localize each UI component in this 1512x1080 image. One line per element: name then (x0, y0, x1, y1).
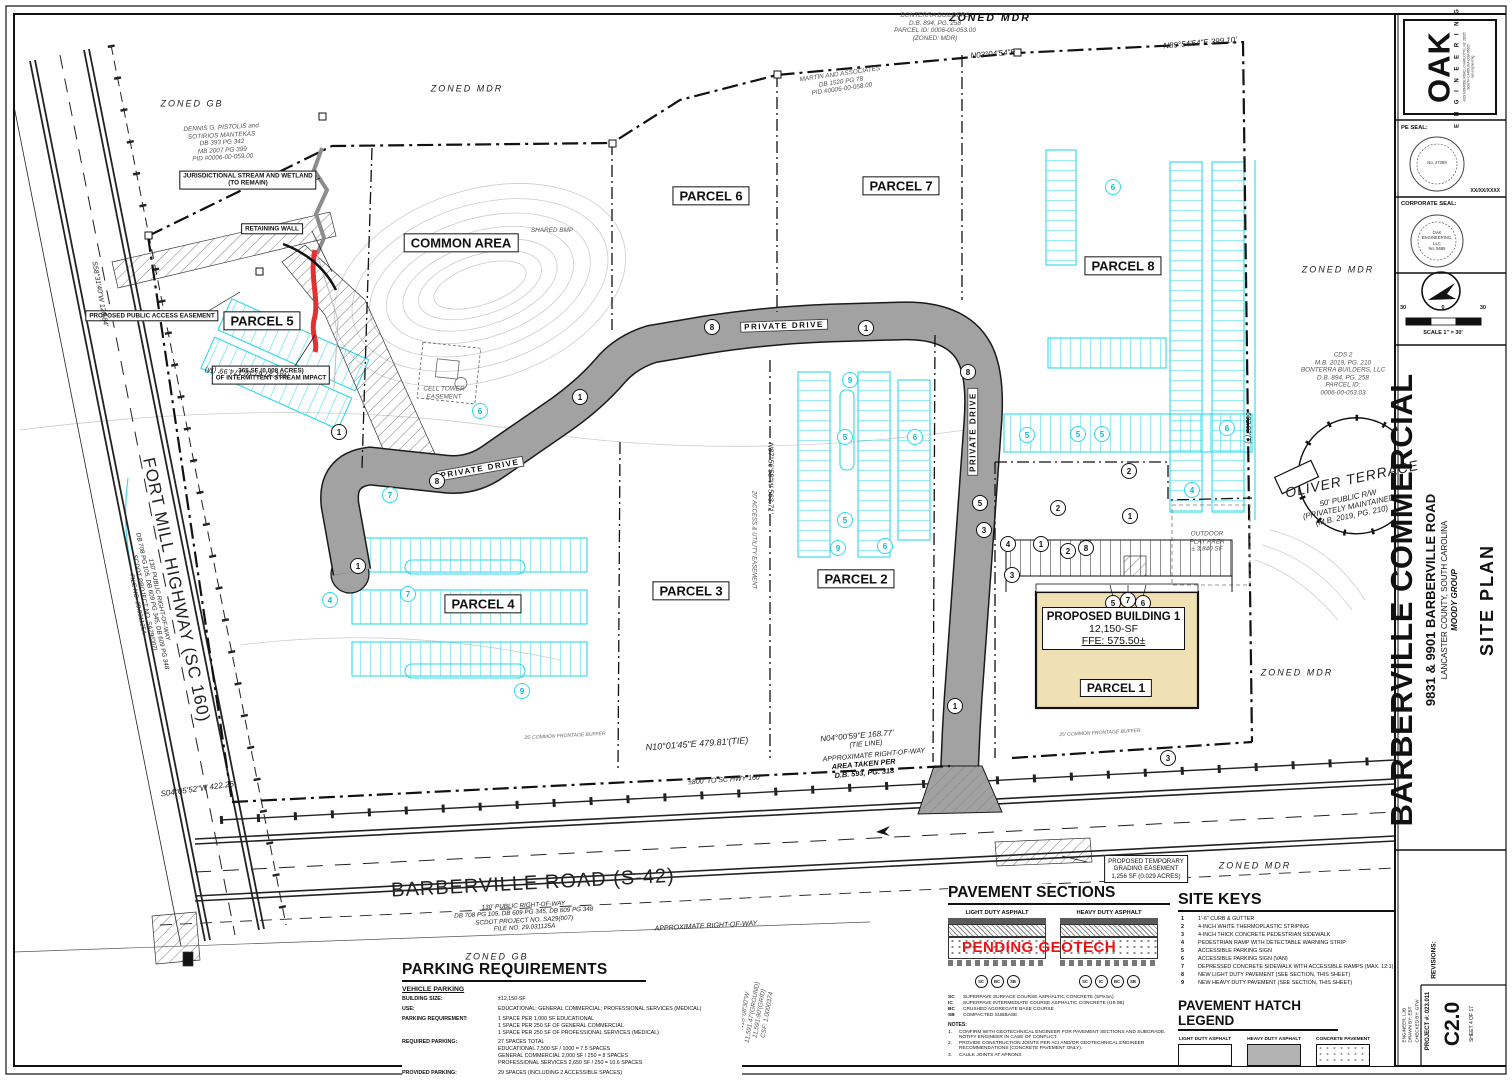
hatch-legend-swatch (1247, 1044, 1301, 1066)
parking-row-value: EDUCATIONAL; GENERAL COMMERCIAL; PROFESS… (498, 1006, 701, 1013)
parking-row-value: 27 SPACES TOTALEDUCATIONAL 7,500 SF / 10… (498, 1039, 642, 1067)
pavement-sections-title: PAVEMENT SECTIONS (948, 884, 1170, 905)
parking-requirement-row: REQUIRED PARKING:27 SPACES TOTALEDUCATIO… (402, 1039, 742, 1067)
site-key-number: 7 (1178, 964, 1198, 970)
parking-requirements-title: PARKING REQUIREMENTS (402, 961, 646, 982)
site-key-text: PEDESTRIAN RAMP WITH DETECTABLE WARNING … (1198, 940, 1346, 946)
scale-numbers: 30 0 30 (1400, 305, 1486, 311)
hatch-legend-swatch (1178, 1044, 1232, 1066)
site-key-text: NEW HEAVY DUTY PAVEMENT (SEE SECTION, TH… (1198, 980, 1352, 986)
material-desc: COMPACTED SUBBASE (963, 1013, 1017, 1018)
pavement-notes: 1.CONFIRM WITH GEOTECHNICAL ENGINEER FOR… (948, 1030, 1170, 1058)
project-client: MOODY GROUP (1450, 373, 1459, 826)
project-title: BARBERVILLE COMMERCIAL (1384, 373, 1420, 826)
site-key-row: 34-INCH THICK CONCRETE PEDESTRIAN SIDEWA… (1178, 932, 1394, 938)
project-address: 9831 & 9901 BARBERVILLE ROAD (1423, 373, 1438, 826)
revisions-label: REVISIONS: (1431, 941, 1438, 979)
parking-requirement-row: PROVIDED PARKING:29 SPACES (INCLUDING 2 … (402, 1070, 742, 1077)
parking-row-label: BUILDING SIZE: (402, 996, 498, 1003)
light-duty-caption: LIGHT DUTY ASPHALT (948, 910, 1046, 916)
site-key-text: 4-INCH THICK CONCRETE PEDESTRIAN SIDEWAL… (1198, 932, 1330, 938)
pe-seal-label: PE SEAL: (1401, 125, 1428, 131)
sheet-of: SHEET 4 OF 17 (1469, 1006, 1475, 1042)
parking-requirements-rows: BUILDING SIZE:±12,150-SFUSE:EDUCATIONAL;… (402, 996, 742, 1077)
credits-block: ENGINEER: LJBDRAWN BY: EBTCHECKED BY: GT… (1401, 1000, 1420, 1043)
oak-engineering-logo: OAK E N G I N E E R I N G 4029 MONROE RO… (1425, 6, 1474, 128)
material-code: SC (948, 995, 963, 1000)
logo-word: OAK (1425, 6, 1453, 128)
site-key-number: 8 (1178, 972, 1198, 978)
pavement-layer-tag: BC (1111, 975, 1124, 988)
note-number: 3. (948, 1053, 959, 1058)
site-key-text: 4-INCH WHITE THERMOPLASTIC STRIPING (1198, 924, 1309, 930)
parking-requirement-row: USE:EDUCATIONAL; GENERAL COMMERCIAL; PRO… (402, 1006, 742, 1013)
parking-row-value: 29 SPACES (INCLUDING 2 ACCESSIBLE SPACES… (498, 1070, 622, 1077)
note-number: 1. (948, 1030, 959, 1040)
hatch-legend-item: CONCRETE PAVEMENT (1316, 1037, 1370, 1066)
note-text: CONFIRM WITH GEOTECHNICAL ENGINEER FOR P… (959, 1030, 1170, 1040)
scale-bar (1406, 318, 1481, 325)
material-code: SB (948, 1013, 963, 1018)
parking-requirement-row: BUILDING SIZE:±12,150-SF (402, 996, 742, 1003)
pavement-hatch-legend-panel: PAVEMENT HATCH LEGEND LIGHT DUTY ASPHALT… (1178, 998, 1394, 1066)
site-key-text: ACCESSIBLE PARKING SIGN (1198, 948, 1272, 954)
hatch-legend-title: PAVEMENT HATCH LEGEND (1178, 998, 1338, 1031)
cell-tower-easement-outline (417, 342, 481, 404)
proposed-building-label: PROPOSED BUILDING 1 12,150-SF FFE: 575.5… (1042, 607, 1185, 650)
pavement-layer-tag: BC (991, 975, 1004, 988)
site-key-row: 7DEPRESSED CONCRETE SIDEWALK WITH ACCESS… (1178, 964, 1394, 970)
site-key-number: 2 (1178, 924, 1198, 930)
seal-date: XX/XX/XXXX (1438, 188, 1500, 194)
hatch-legend-item: HEAVY DUTY ASPHALT (1247, 1037, 1301, 1066)
vehicle-parking-subtitle: VEHICLE PARKING (402, 986, 742, 993)
hatch-legend-item: LIGHT DUTY ASPHALT (1178, 1037, 1232, 1066)
pavement-sections-panel: PAVEMENT SECTIONS LIGHT DUTY ASPHALT SCB… (948, 884, 1170, 1059)
site-key-row: 9NEW HEAVY DUTY PAVEMENT (SEE SECTION, T… (1178, 980, 1394, 986)
site-key-number: 9 (1178, 980, 1198, 986)
notes-label: NOTES: (948, 1022, 1170, 1028)
scale-mid: 0 (1441, 305, 1444, 311)
material-desc: CRUSHED AGGREGATE BASE COURSE (963, 1007, 1054, 1012)
site-key-row: 5ACCESSIBLE PARKING SIGN (1178, 948, 1394, 954)
note-text: PROVIDE CONSTRUCTION JOINTS PER ACI AND/… (959, 1041, 1170, 1051)
site-keys-title: SITE KEYS (1178, 891, 1394, 912)
building-ffe: FFE: 575.50± (1043, 635, 1184, 647)
pavement-material-row: SBCOMPACTED SUBBASE (948, 1013, 1170, 1018)
parking-row-value: ±12,150-SF (498, 996, 526, 1003)
pavement-layer-tag: SB (1127, 975, 1140, 988)
site-key-row: 11'-6" CURB & GUTTER (1178, 916, 1394, 922)
fort-mill-highway (6, 45, 286, 946)
building-name: PROPOSED BUILDING 1 (1043, 611, 1184, 623)
parking-row-label: USE: (402, 1006, 498, 1013)
site-key-number: 6 (1178, 956, 1198, 962)
parking-row-label: PARKING REQUIREMENT: (402, 1016, 498, 1037)
material-code: BC (948, 1007, 963, 1012)
site-key-number: 1 (1178, 916, 1198, 922)
corporate-seal-text: OAKENGINEERING,LLCNo. 5685 (1420, 230, 1454, 251)
pavement-note: 3.CAULK JOINTS AT APRONS (948, 1053, 1170, 1058)
site-key-number: 4 (1178, 940, 1198, 946)
pavement-note: 1.CONFIRM WITH GEOTECHNICAL ENGINEER FOR… (948, 1030, 1170, 1040)
site-key-text: DEPRESSED CONCRETE SIDEWALK WITH ACCESSI… (1198, 964, 1393, 970)
pavement-layer-tag: IC (1095, 975, 1108, 988)
corporate-seal-label: CORPORATE SEAL: (1401, 201, 1457, 207)
site-key-row: 24-INCH WHITE THERMOPLASTIC STRIPING (1178, 924, 1394, 930)
heavy-duty-caption: HEAVY DUTY ASPHALT (1060, 910, 1158, 916)
note-text: CAULK JOINTS AT APRONS (959, 1053, 1021, 1058)
project-number: PROJECT #: 023.011 (1425, 992, 1431, 1050)
building-area: 12,150-SF (1043, 623, 1184, 635)
hatch-legend-caption: CONCRETE PAVEMENT (1316, 1037, 1370, 1042)
pavement-layer-tag: SC (1079, 975, 1092, 988)
pavement-material-row: BCCRUSHED AGGREGATE BASE COURSE (948, 1007, 1170, 1012)
pending-geotech-warning: PENDING GEOTECH (962, 939, 1116, 956)
hatch-legend-chips: LIGHT DUTY ASPHALTHEAVY DUTY ASPHALTCONC… (1178, 1037, 1394, 1066)
pavement-note: 2.PROVIDE CONSTRUCTION JOINTS PER ACI AN… (948, 1041, 1170, 1051)
note-number: 2. (948, 1041, 959, 1051)
pe-seal-number: No. 27389 (1424, 160, 1450, 165)
site-key-text: NEW LIGHT DUTY PAVEMENT (SEE SECTION, TH… (1198, 972, 1350, 978)
site-key-row: 8NEW LIGHT DUTY PAVEMENT (SEE SECTION, T… (1178, 972, 1394, 978)
pavement-material-row: SCSUPERPAVE SURFACE COURSE ASPHALTIC CON… (948, 995, 1170, 1000)
scale-caption: SCALE 1" = 30' (1400, 330, 1486, 336)
material-code: IC (948, 1001, 963, 1006)
site-key-number: 3 (1178, 932, 1198, 938)
project-title-block: BARBERVILLE COMMERCIAL 9831 & 9901 BARBE… (1384, 373, 1498, 826)
hatch-legend-caption: HEAVY DUTY ASPHALT (1247, 1037, 1301, 1042)
site-key-row: 6ACCESSIBLE PARKING SIGN (VAN) (1178, 956, 1394, 962)
site-key-text: ACCESSIBLE PARKING SIGN (VAN) (1198, 956, 1288, 962)
site-keys-panel: SITE KEYS 11'-6" CURB & GUTTER24-INCH WH… (1178, 891, 1394, 988)
site-key-text: 1'-6" CURB & GUTTER (1198, 916, 1254, 922)
site-plan-sheet: PARCEL 5COMMON AREAPARCEL 6PARCEL 7PARCE… (0, 0, 1512, 1080)
site-key-row: 4PEDESTRIAN RAMP WITH DETECTABLE WARNING… (1178, 940, 1394, 946)
firm-website: oak.engineering (1471, 6, 1475, 128)
parcel-1-label: PARCEL 1 (1080, 679, 1152, 697)
parking-row-value: 1 SPACE PER 1,000 SF EDUCATIONAL1 SPACE … (498, 1016, 659, 1037)
parking-requirements-panel: PARKING REQUIREMENTS VEHICLE PARKING BUI… (402, 961, 742, 1080)
parking-row-label: REQUIRED PARKING: (402, 1039, 498, 1067)
site-keys-list: 11'-6" CURB & GUTTER24-INCH WHITE THERMO… (1178, 916, 1394, 986)
material-desc: SUPERPAVE SURFACE COURSE ASPHALTIC CONCR… (963, 995, 1114, 1000)
sheet-title: SITE PLAN (1477, 373, 1498, 826)
contour-lines (20, 148, 1365, 660)
material-desc: SUPERPAVE INTERMEDIATE COURSE ASPHALTIC … (963, 1001, 1124, 1006)
pavement-layer-tag: SC (975, 975, 988, 988)
sheet-number: C2.0 (1441, 1002, 1465, 1046)
pavement-material-row: ICSUPERPAVE INTERMEDIATE COURSE ASPHALTI… (948, 1001, 1170, 1006)
scale-left: 30 (1400, 305, 1406, 311)
logo-subtitle: E N G I N E E R I N G (1454, 6, 1460, 128)
hatch-legend-caption: LIGHT DUTY ASPHALT (1178, 1037, 1232, 1042)
parking-requirement-row: PARKING REQUIREMENT:1 SPACE PER 1,000 SF… (402, 1016, 742, 1037)
site-key-number: 5 (1178, 948, 1198, 954)
scale-right: 30 (1480, 305, 1486, 311)
pavement-layer-tag: SB (1007, 975, 1020, 988)
project-county: LANCASTER COUNTY, SOUTH CAROLINA (1440, 373, 1449, 826)
hatch-legend-swatch (1316, 1044, 1370, 1066)
parking-row-label: PROVIDED PARKING: (402, 1070, 498, 1077)
pavement-materials-list: SCSUPERPAVE SURFACE COURSE ASPHALTIC CON… (948, 995, 1170, 1018)
